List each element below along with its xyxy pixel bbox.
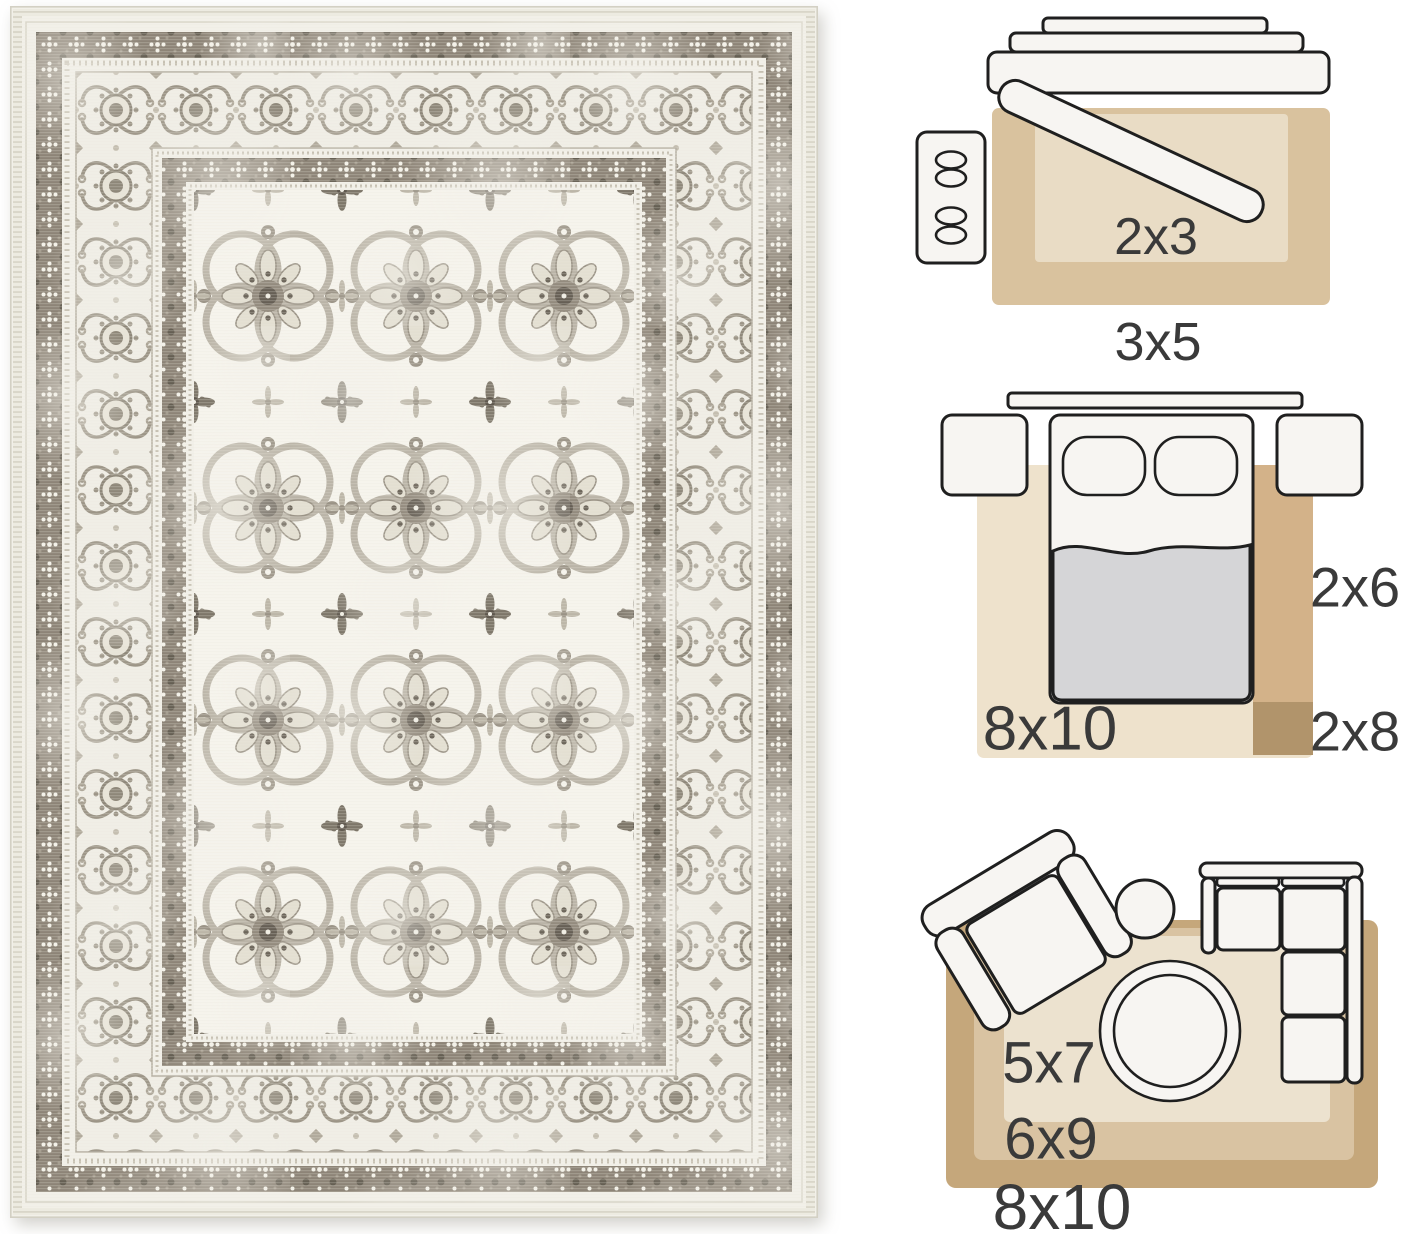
runner-2x6 — [1253, 465, 1313, 702]
sofa-right-arm-icon — [1347, 877, 1362, 1083]
shoe-mat-icon — [917, 132, 985, 263]
label-8x10-living: 8x10 — [993, 1171, 1132, 1234]
label-3x5: 3x5 — [1114, 312, 1201, 372]
size-diagram-living-room: 5x7 6x9 8x10 — [905, 790, 1404, 1234]
rug-photo — [10, 6, 818, 1218]
label-6x9: 6x9 — [1004, 1107, 1098, 1172]
label-5x7: 5x7 — [1002, 1031, 1096, 1096]
side-table-icon — [1116, 880, 1174, 938]
sofa-cushion-icon — [1282, 952, 1345, 1015]
label-2x6: 2x6 — [1310, 556, 1400, 619]
label-2x8: 2x8 — [1310, 700, 1400, 763]
coffee-table-icon — [1100, 961, 1240, 1101]
nightstand-right-icon — [1277, 415, 1362, 495]
pillow-left-icon — [1063, 437, 1145, 495]
product-image: 2x3 3x5 8x10 2x6 2x8 — [0, 0, 1404, 1234]
bed-icon — [1050, 415, 1253, 703]
sofa-cushion-icon — [1282, 888, 1345, 950]
size-diagram-bedroom: 8x10 2x6 2x8 — [905, 385, 1404, 770]
headboard-icon — [1008, 393, 1302, 408]
rug-weave-texture — [13, 9, 815, 1215]
label-2x3: 2x3 — [1114, 208, 1198, 266]
sofa-cushion-icon — [1282, 1017, 1345, 1082]
blanket-icon — [1053, 545, 1250, 700]
sofa-cushion-icon — [1217, 888, 1280, 950]
console-table-icon — [988, 18, 1329, 93]
pillow-right-icon — [1155, 437, 1237, 495]
runner-2x8-extension — [1253, 702, 1313, 755]
sofa-back-icon — [1200, 863, 1362, 878]
size-diagram-entryway: 2x3 3x5 — [905, 8, 1404, 374]
nightstand-left-icon — [942, 415, 1027, 495]
label-8x10-bedroom: 8x10 — [983, 695, 1117, 764]
sofa-left-arm-icon — [1202, 878, 1215, 953]
